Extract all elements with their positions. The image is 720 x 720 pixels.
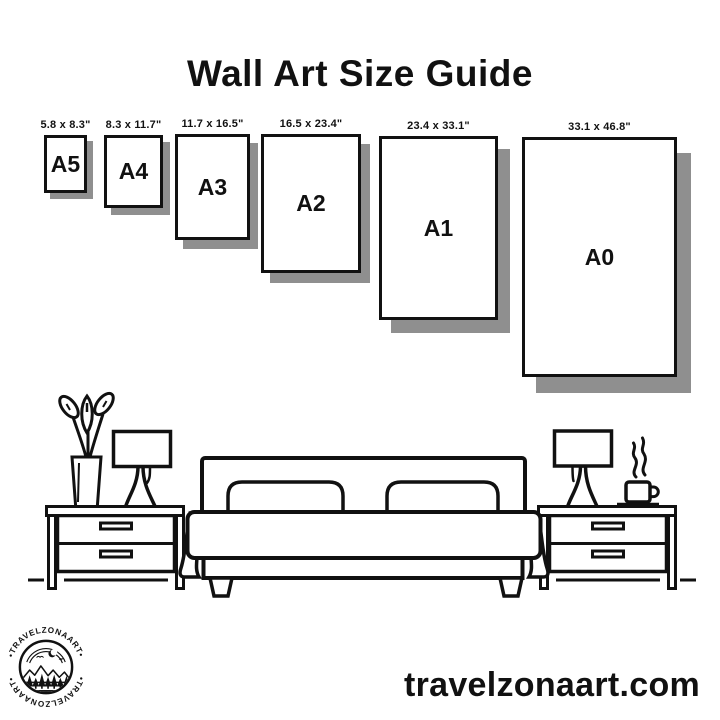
- size-name-label: A4: [119, 158, 148, 185]
- brand-logo-badge: •TRAVELZONAART• •TRAVELZONAART•: [3, 624, 89, 710]
- cup-body: [626, 482, 650, 502]
- vase: [72, 457, 101, 511]
- paper-box-a5: A5: [44, 135, 87, 193]
- size-item-a2: 16.5 x 23.4" A2: [261, 134, 361, 273]
- size-item-a5: 5.8 x 8.3" A5: [44, 135, 87, 193]
- lamp-shade: [114, 432, 171, 467]
- size-item-a1: 23.4 x 33.1" A1: [379, 136, 498, 320]
- nightstand-top: [47, 507, 184, 516]
- website-url: travelzonaart.com: [392, 666, 712, 705]
- size-item-a3: 11.7 x 16.5" A3: [175, 134, 250, 240]
- size-item-a4: 8.3 x 11.7" A4: [104, 135, 163, 208]
- bed-frame: [204, 558, 523, 578]
- paper-box-a3: A3: [175, 134, 250, 240]
- steam-icon: [633, 438, 645, 477]
- coffee-cup: [617, 438, 659, 505]
- drawer-handle: [593, 551, 624, 557]
- nightstand-right: [539, 507, 676, 589]
- nightstand-top: [539, 507, 676, 516]
- size-name-label: A1: [424, 215, 453, 242]
- size-item-a0: 33.1 x 46.8" A0: [522, 137, 677, 377]
- size-name-label: A5: [51, 151, 80, 178]
- lamp-shade: [555, 431, 612, 466]
- drawer-handle: [101, 551, 132, 557]
- table-lamp-right: [555, 431, 612, 509]
- nightstand-left: [47, 507, 184, 589]
- paper-box-a1: A1: [379, 136, 498, 320]
- lamp-base: [125, 467, 156, 509]
- paper-size-chart: 5.8 x 8.3" A5 8.3 x 11.7" A4 11.7 x 16.5…: [0, 0, 720, 400]
- nightstand-leg: [49, 516, 56, 589]
- bed-leg: [210, 578, 232, 596]
- nightstand-leg: [669, 516, 676, 589]
- size-name-label: A3: [198, 174, 227, 201]
- size-dimensions-label: 16.5 x 23.4": [280, 118, 343, 130]
- bedroom-illustration: [0, 378, 720, 608]
- leaf: [82, 396, 93, 433]
- table-lamp-left: [114, 432, 171, 509]
- pillow: [387, 482, 498, 512]
- paper-box-a2: A2: [261, 134, 361, 273]
- drawer-handle: [593, 523, 624, 529]
- paper-box-a4: A4: [104, 135, 163, 208]
- size-name-label: A0: [585, 244, 614, 271]
- size-name-label: A2: [296, 190, 325, 217]
- size-dimensions-label: 33.1 x 46.8": [568, 121, 631, 133]
- bed: [180, 458, 548, 596]
- size-dimensions-label: 8.3 x 11.7": [106, 119, 162, 131]
- pillow: [228, 482, 343, 512]
- duvet: [188, 512, 541, 558]
- size-dimensions-label: 11.7 x 16.5": [181, 118, 243, 130]
- bed-leg: [500, 578, 522, 596]
- paper-box-a0: A0: [522, 137, 677, 377]
- size-dimensions-label: 23.4 x 33.1": [407, 120, 470, 132]
- drawer-handle: [101, 523, 132, 529]
- size-dimensions-label: 5.8 x 8.3": [40, 119, 90, 131]
- plant: [56, 390, 117, 511]
